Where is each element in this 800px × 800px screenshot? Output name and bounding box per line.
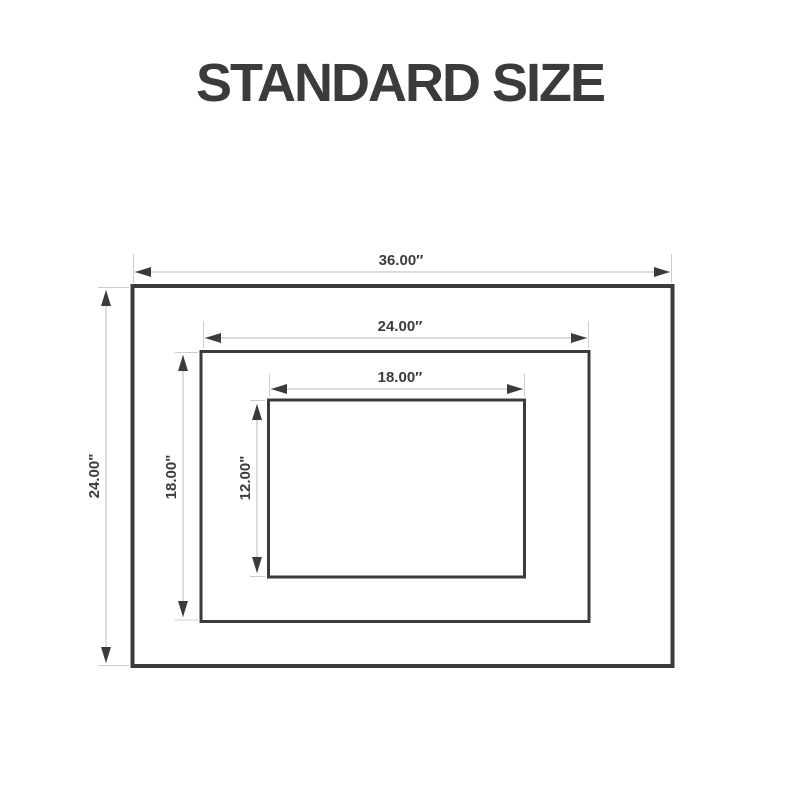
dim-outer-height-label: 24.00" [86,454,103,499]
dim-outer-width: 36.00″ [134,252,672,283]
dim-middle-width: 24.00″ [204,318,589,348]
dim-inner-width-label: 18.00″ [378,369,423,386]
dim-middle-height-label: 18.00" [163,455,180,500]
dim-middle-height: 18.00" [163,353,198,621]
dim-outer-height: 24.00" [86,288,129,666]
middle-rectangle [201,352,589,622]
page: STANDARD SIZE 36.00″ 24.00″ [0,0,800,800]
dim-outer-width-label: 36.00″ [379,252,424,269]
dim-middle-width-label: 24.00″ [378,318,423,335]
dim-inner-height: 12.00" [237,401,265,577]
outer-rectangle [133,286,673,666]
inner-rectangle [269,400,525,577]
dim-inner-width: 18.00″ [270,369,525,397]
dim-inner-height-label: 12.00" [237,456,254,501]
standard-size-diagram: 36.00″ 24.00″ 18.00″ 24.00" [0,0,800,800]
